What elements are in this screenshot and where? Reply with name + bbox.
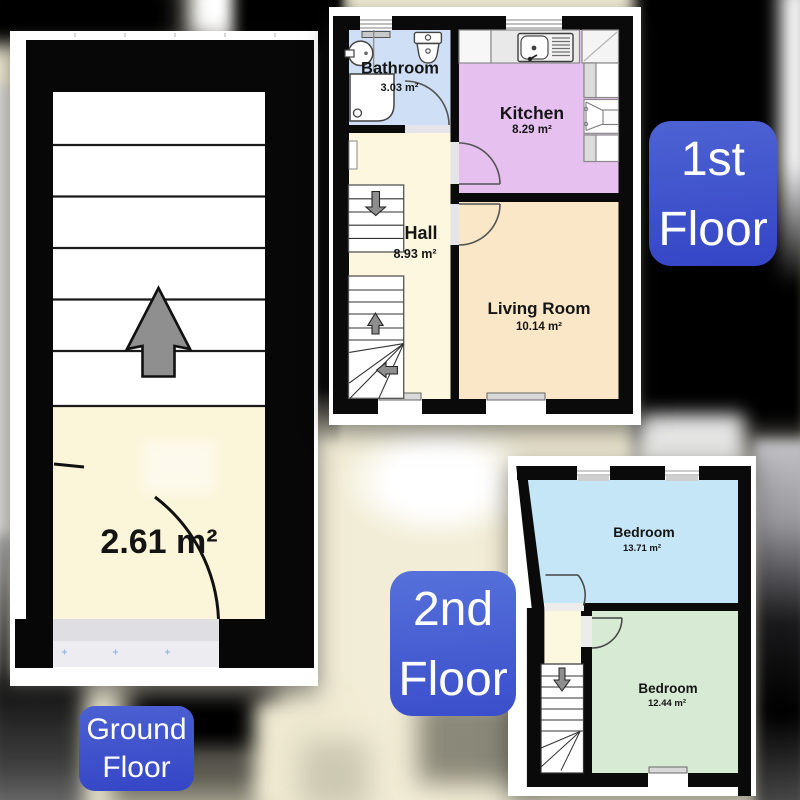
svg-text:Bathroom: Bathroom <box>361 60 439 78</box>
svg-text:Bedroom: Bedroom <box>613 524 674 540</box>
svg-text:8.29 m²: 8.29 m² <box>512 124 552 136</box>
svg-text:Kitchen: Kitchen <box>500 103 564 123</box>
svg-text:13.71 m²: 13.71 m² <box>623 543 661 554</box>
svg-text:Bedroom: Bedroom <box>638 681 697 696</box>
svg-text:Living Room: Living Room <box>488 299 591 318</box>
svg-text:3.03 m²: 3.03 m² <box>381 82 419 94</box>
svg-text:2.61 m²: 2.61 m² <box>100 523 217 561</box>
svg-text:12.44 m²: 12.44 m² <box>648 698 686 709</box>
svg-text:10.14 m²: 10.14 m² <box>516 321 562 333</box>
svg-text:Hall: Hall <box>404 223 437 243</box>
svg-text:8.93 m²: 8.93 m² <box>393 247 436 261</box>
